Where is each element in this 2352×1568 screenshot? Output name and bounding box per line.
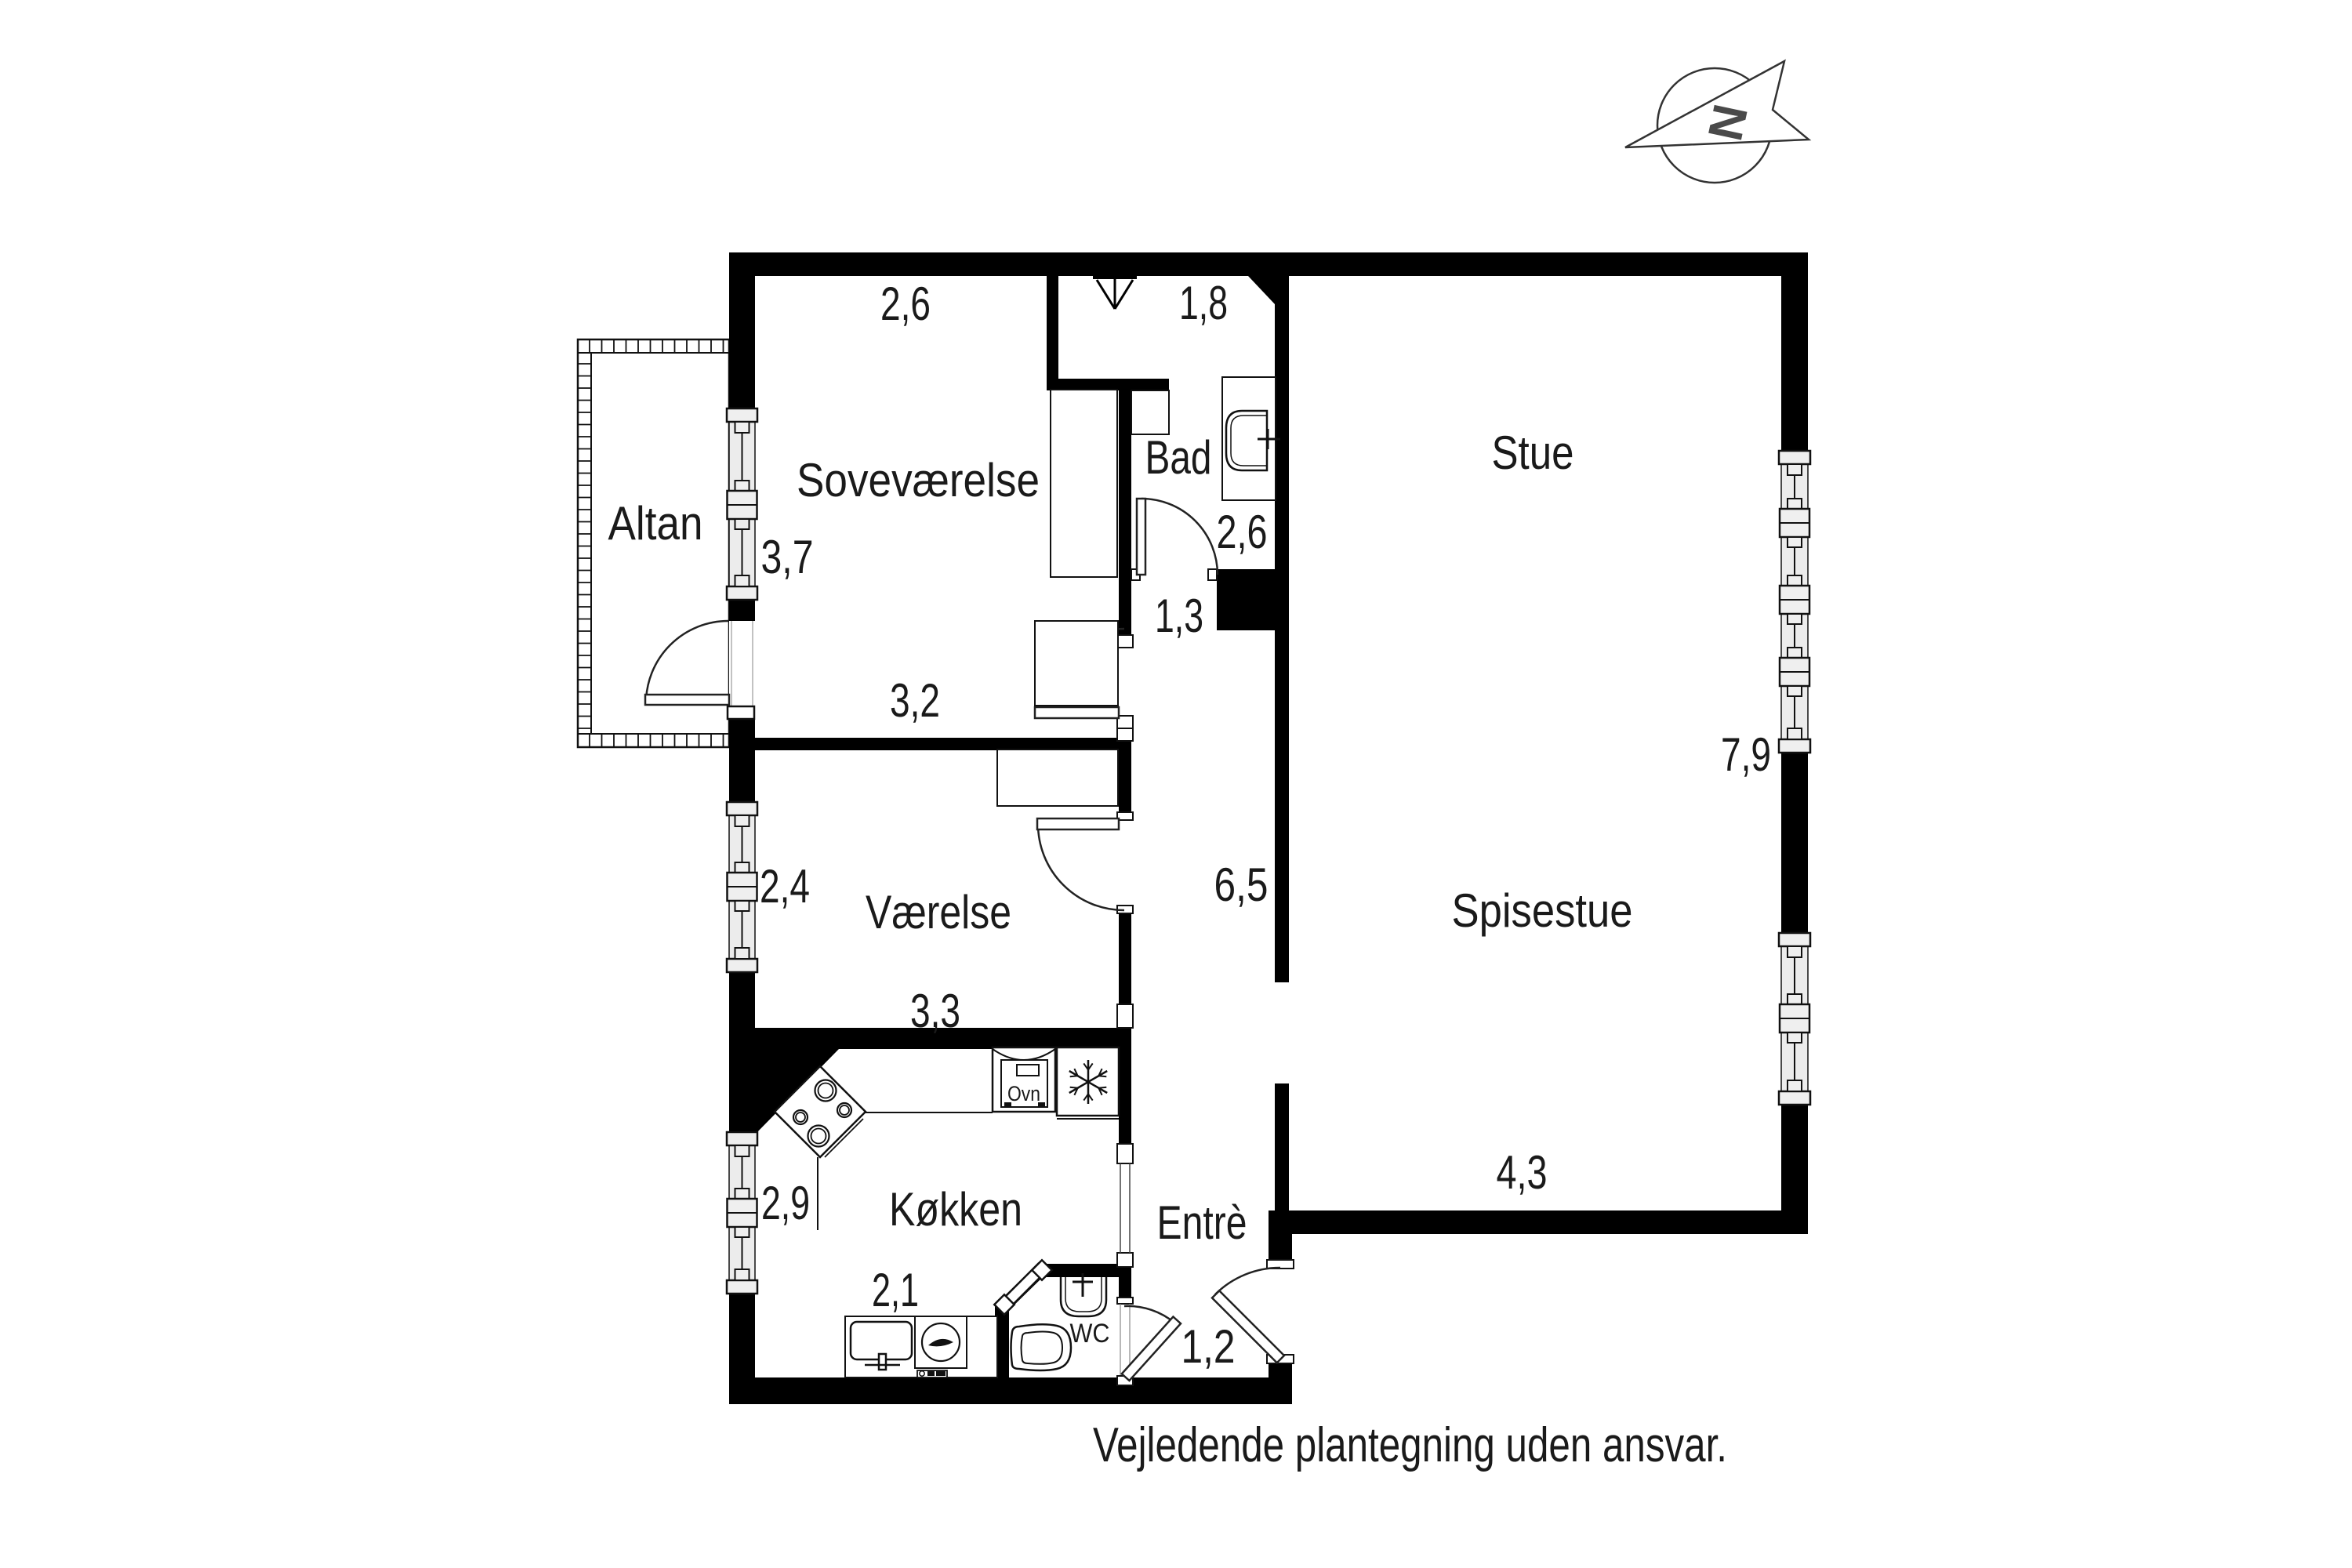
svg-text:7,9: 7,9 (1721, 728, 1771, 781)
svg-text:Altan: Altan (608, 497, 703, 550)
svg-text:Spisestue: Spisestue (1452, 884, 1633, 937)
svg-text:Ovn: Ovn (1007, 1082, 1040, 1105)
svg-text:3,3: 3,3 (910, 985, 960, 1037)
svg-text:1,3: 1,3 (1155, 590, 1203, 642)
svg-text:Køkken: Køkken (889, 1183, 1022, 1236)
svg-text:WC: WC (1070, 1319, 1110, 1348)
svg-text:2,6: 2,6 (1217, 506, 1268, 558)
svg-text:1,8: 1,8 (1179, 277, 1228, 329)
svg-text:Værelse: Værelse (866, 886, 1011, 938)
svg-text:2,9: 2,9 (761, 1177, 810, 1229)
svg-text:1,2: 1,2 (1181, 1320, 1236, 1373)
svg-text:Bad: Bad (1145, 431, 1212, 484)
svg-text:6,5: 6,5 (1214, 858, 1269, 911)
svg-text:3,2: 3,2 (890, 674, 940, 727)
svg-text:2,6: 2,6 (880, 278, 931, 330)
svg-text:Entrè: Entrè (1157, 1196, 1247, 1249)
svg-text:Vejledende plantegning uden an: Vejledende plantegning uden ansvar. (1093, 1418, 1727, 1472)
svg-text:3,7: 3,7 (761, 531, 814, 583)
svg-text:Soveværelse: Soveværelse (797, 454, 1040, 506)
svg-text:2,4: 2,4 (760, 860, 810, 913)
svg-text:Stue: Stue (1492, 426, 1574, 479)
svg-text:4,3: 4,3 (1497, 1146, 1548, 1199)
svg-text:2,1: 2,1 (872, 1264, 919, 1316)
